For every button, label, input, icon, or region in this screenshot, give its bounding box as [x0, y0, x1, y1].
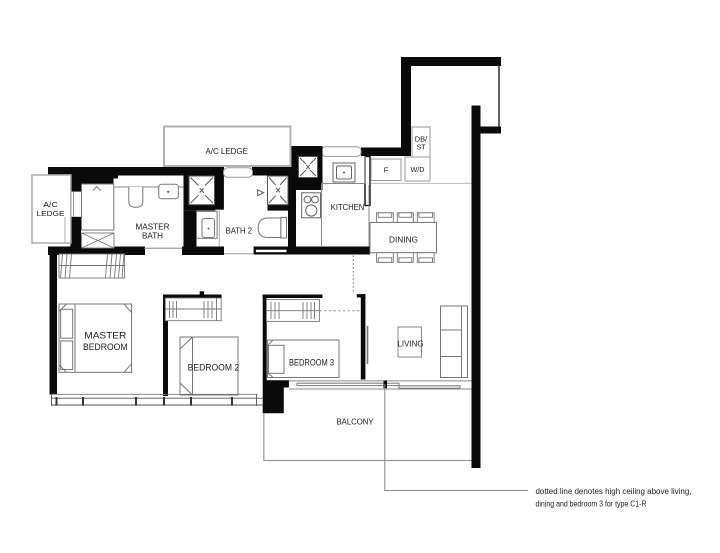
svg-text:F: F: [384, 166, 389, 175]
svg-text:BATH 2: BATH 2: [226, 227, 253, 236]
svg-text:A/C LEDGE: A/C LEDGE: [205, 147, 248, 156]
svg-text:BEDROOM: BEDROOM: [83, 341, 128, 352]
svg-text:A/C: A/C: [43, 200, 58, 209]
svg-text:W/D: W/D: [411, 165, 425, 174]
svg-text:BEDROOM 2: BEDROOM 2: [188, 363, 240, 373]
svg-text:MASTER: MASTER: [84, 330, 126, 341]
svg-text:dotted line denotes high ceili: dotted line denotes high ceiling above l…: [536, 487, 692, 496]
svg-text:DB/: DB/: [415, 137, 428, 144]
svg-text:KITCHEN: KITCHEN: [331, 203, 365, 212]
svg-text:BALCONY: BALCONY: [337, 417, 374, 427]
svg-text:LEDGE: LEDGE: [37, 209, 65, 218]
svg-text:LIVING: LIVING: [398, 340, 424, 349]
svg-text:ST: ST: [417, 145, 427, 152]
svg-text:BATH: BATH: [142, 232, 163, 241]
svg-text:BEDROOM 3: BEDROOM 3: [289, 358, 334, 368]
svg-text:dining and bedroom 3 for type: dining and bedroom 3 for type C1-R: [536, 500, 647, 509]
svg-text:MASTER: MASTER: [136, 223, 170, 232]
svg-text:DINING: DINING: [389, 234, 418, 244]
